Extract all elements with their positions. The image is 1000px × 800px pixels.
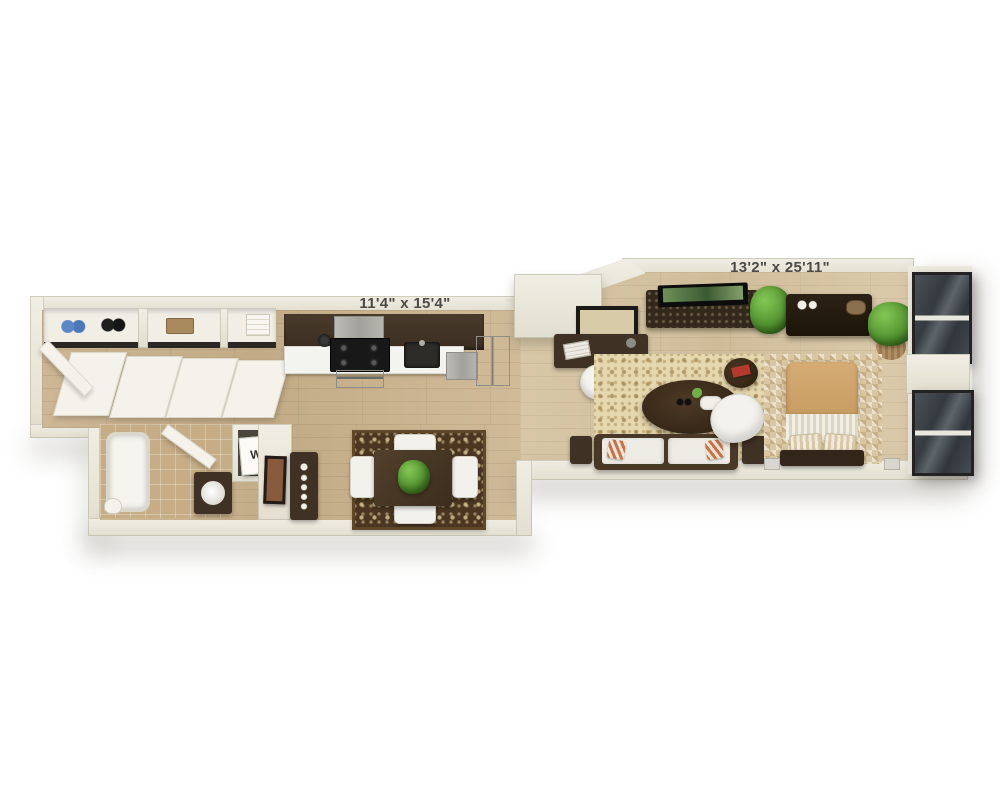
storage-box xyxy=(166,318,194,334)
window-pillar xyxy=(906,354,970,394)
living-dimensions-label: 13'2" x 25'11" xyxy=(690,259,870,277)
floorplan-canvas: W/D 11'4" x 15'4" xyxy=(0,0,1000,800)
bed-duvet xyxy=(786,362,858,418)
dining-chair-west xyxy=(350,456,376,498)
refrigerator xyxy=(476,336,510,386)
wall-sconce xyxy=(764,458,780,470)
accent-pillow xyxy=(607,439,626,460)
side-table-left xyxy=(570,436,592,464)
dresser-decor xyxy=(796,300,820,310)
closet-divider xyxy=(220,308,228,348)
hallway-wall-art xyxy=(263,456,287,505)
folded-towels xyxy=(246,314,270,336)
coffee-table-candles xyxy=(676,398,692,406)
dining-chair-east xyxy=(452,456,478,498)
console-table xyxy=(290,452,318,520)
dishwasher xyxy=(446,352,478,380)
closet-divider xyxy=(138,308,148,348)
black-shoes xyxy=(100,318,126,332)
range-hood xyxy=(334,316,384,340)
window-upper xyxy=(912,272,972,364)
faucet xyxy=(419,340,425,346)
kitchen-dimensions-label: 11'4" x 15'4" xyxy=(320,295,490,313)
tv-screen xyxy=(663,286,743,303)
dresser-basket xyxy=(846,300,866,315)
blue-shoes xyxy=(60,320,86,333)
oven xyxy=(336,370,384,388)
toilet xyxy=(104,498,122,514)
headboard xyxy=(780,450,864,466)
closet-rod xyxy=(44,342,276,348)
desk-mug xyxy=(626,338,636,348)
wall-sconce xyxy=(884,458,900,470)
accent-pillow xyxy=(705,439,724,460)
wall-step xyxy=(516,460,532,536)
stove xyxy=(330,338,390,372)
window-lower xyxy=(912,390,974,476)
vanity-sink xyxy=(201,481,225,505)
